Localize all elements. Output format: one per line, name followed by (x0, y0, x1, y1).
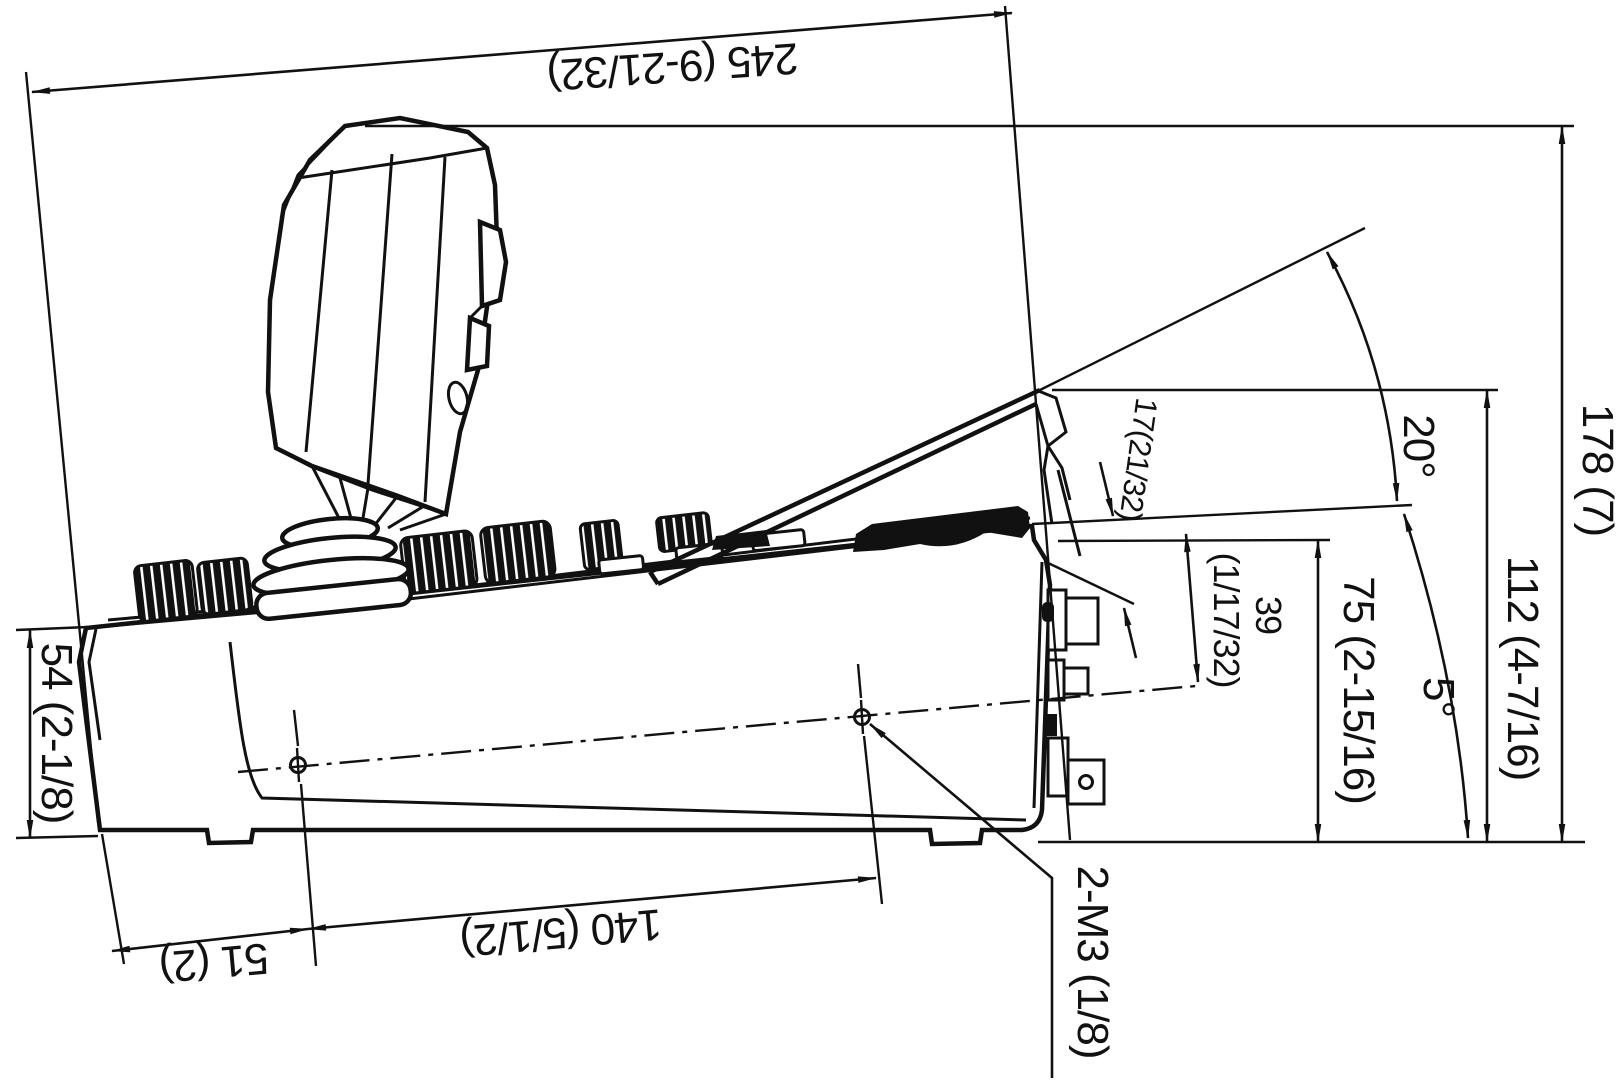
screw-callout: 2-M3 (1/8) (1068, 866, 1117, 1059)
reference-lines (16, 6, 1585, 966)
dim-39-mm: 39 (1248, 596, 1289, 634)
dim-140: 140 (5/1/2) (459, 899, 664, 965)
dim-54: 54 (2-1/8) (32, 643, 81, 824)
dim-51: 51 (2) (158, 933, 271, 991)
knob-a2 (197, 558, 253, 615)
dim-arrow-17-top (1100, 462, 1113, 516)
ext-hole2-up (858, 664, 861, 698)
front-bevel (89, 629, 100, 740)
dim-75: 75 (2-15/16) (1334, 576, 1383, 804)
panel-plane-extension (1032, 505, 1412, 524)
knob-a1 (134, 560, 198, 622)
dim-112: 112 (4-7/16) (1498, 556, 1547, 780)
button-1 (599, 555, 644, 574)
ext-54-bottom (16, 836, 98, 838)
connector-lower-pin (1046, 714, 1057, 736)
knob-c (480, 520, 556, 584)
display-front-tip (650, 572, 658, 584)
tilt-display (650, 390, 1080, 584)
ground-tab (1068, 760, 1104, 804)
dim-line-39 (1186, 534, 1198, 682)
ext-hole1-down (301, 784, 316, 966)
dim-39-inch: (1/17/32) (1206, 552, 1247, 687)
height-ref-75 (1058, 540, 1330, 541)
mounting-holes (291, 700, 870, 782)
angle-20: 20° (1394, 414, 1443, 478)
screw-leader (870, 724, 1052, 1078)
button-group-rear (853, 506, 1030, 552)
ext-51-left (102, 834, 124, 964)
dim-17: 17(21/32) (1112, 396, 1164, 523)
display-plane-extension (1040, 228, 1365, 390)
dim-178: 178 (7) (1573, 404, 1616, 536)
knob-b (400, 530, 478, 594)
side-view-drawing: 245 (9-21/32) 178 (7) 112 (4-7/16) 75 (2… (0, 0, 1616, 1080)
dim-arrow-17-bottom (1124, 608, 1136, 658)
ext-hole1-up (294, 710, 298, 746)
joystick-bellows (252, 514, 412, 620)
dimensions: 245 (9-21/32) 178 (7) 112 (4-7/16) 75 (2… (30, 13, 1616, 1078)
angle-arc-20 (1327, 252, 1397, 501)
technical-drawing-canvas: 245 (9-21/32) 178 (7) 112 (4-7/16) 75 (2… (0, 0, 1616, 1080)
connector-upper-plug (1066, 598, 1098, 644)
ext-54-top (16, 627, 88, 630)
rear-inner-edge (1034, 562, 1042, 808)
display-bottom-edge (658, 404, 1036, 584)
angle-5: 5° (1414, 677, 1463, 717)
connector-mid-plug (1064, 668, 1088, 694)
chassis-seam (230, 642, 1026, 820)
dim-line-245 (32, 13, 1012, 92)
dim-245: 245 (9-21/32) (546, 33, 800, 99)
